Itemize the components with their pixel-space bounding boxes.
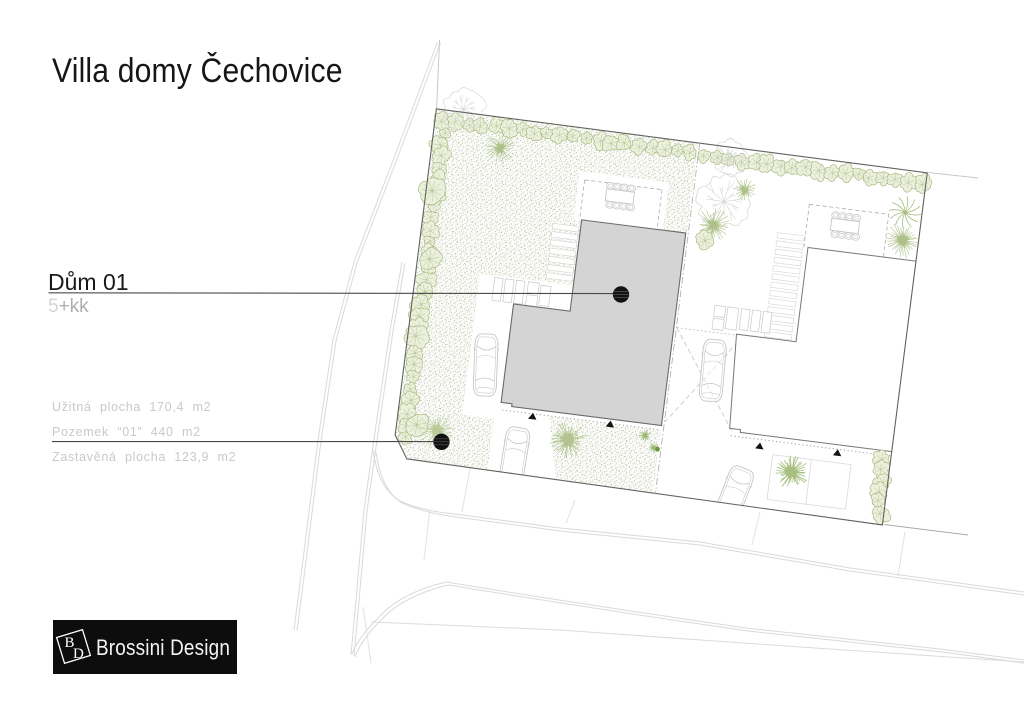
svg-text:D: D xyxy=(73,646,84,662)
